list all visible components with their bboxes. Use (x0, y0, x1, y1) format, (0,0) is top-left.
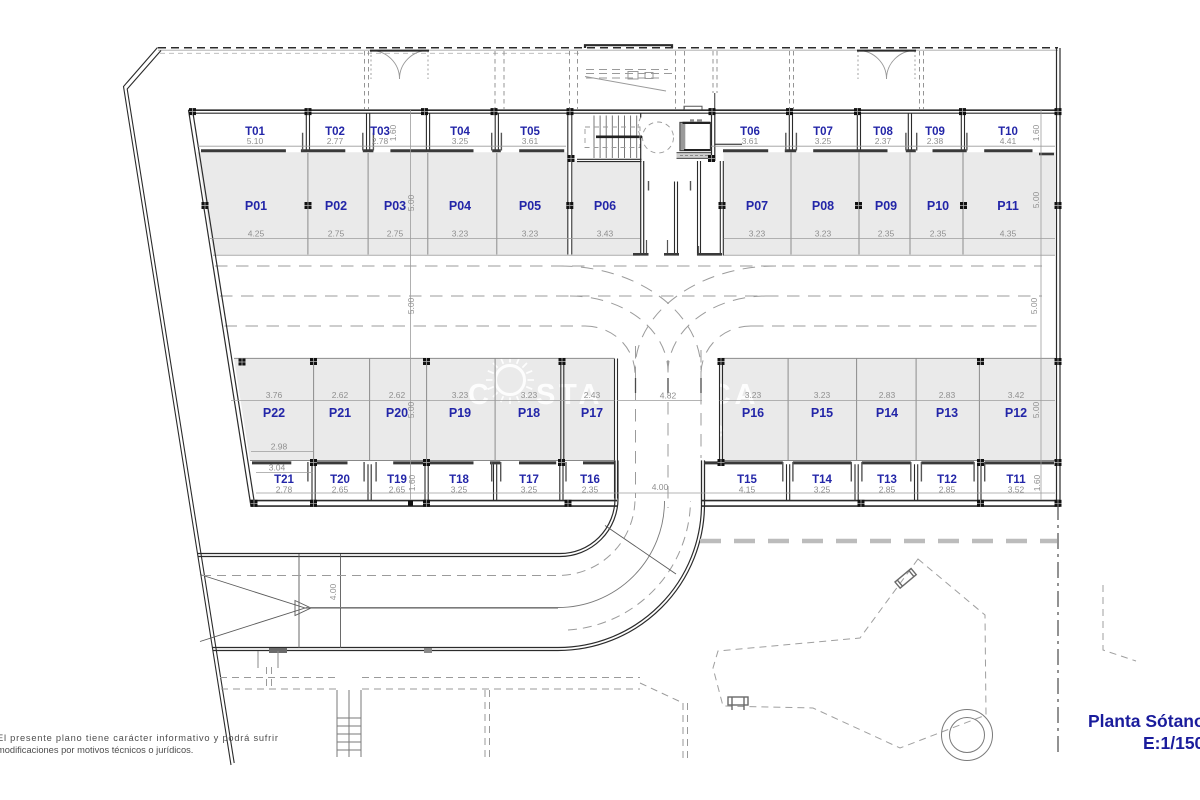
svg-text:5.00: 5.00 (406, 401, 416, 418)
svg-text:4.25: 4.25 (248, 229, 265, 239)
svg-text:3.23: 3.23 (452, 229, 469, 239)
svg-text:5.00: 5.00 (1031, 401, 1041, 418)
svg-text:3.43: 3.43 (597, 229, 614, 239)
svg-text:STA BLANCA: STA BLANCA (536, 379, 759, 411)
svg-text:1.60: 1.60 (407, 474, 417, 491)
svg-text:2.38: 2.38 (927, 136, 944, 146)
svg-text:3.25: 3.25 (814, 485, 831, 495)
svg-text:2.85: 2.85 (879, 485, 896, 495)
svg-text:4.00: 4.00 (652, 482, 669, 492)
svg-text:2.83: 2.83 (879, 390, 896, 400)
svg-text:P06: P06 (594, 199, 616, 213)
svg-text:3.23: 3.23 (814, 390, 831, 400)
svg-text:2.77: 2.77 (327, 136, 344, 146)
svg-text:4.82: 4.82 (660, 391, 677, 401)
svg-text:3.61: 3.61 (742, 136, 759, 146)
svg-text:3.23: 3.23 (521, 390, 538, 400)
svg-text:3.23: 3.23 (745, 390, 762, 400)
svg-text:2.35: 2.35 (878, 229, 895, 239)
svg-text:modificaciones por motivos téc: modificaciones por motivos técnicos o ju… (0, 745, 193, 755)
svg-text:2.37: 2.37 (875, 136, 892, 146)
svg-text:3.23: 3.23 (522, 229, 539, 239)
svg-text:5.00: 5.00 (1031, 191, 1041, 208)
svg-text:P16: P16 (742, 406, 764, 420)
svg-text:4.00: 4.00 (328, 583, 338, 600)
svg-text:P21: P21 (329, 406, 351, 420)
svg-text:4.35: 4.35 (1000, 229, 1017, 239)
svg-text:5.00: 5.00 (406, 297, 416, 314)
svg-text:2.62: 2.62 (332, 390, 349, 400)
svg-text:2.35: 2.35 (930, 229, 947, 239)
svg-text:2.65: 2.65 (332, 485, 349, 495)
svg-text:3.23: 3.23 (815, 229, 832, 239)
svg-text:P07: P07 (746, 199, 768, 213)
svg-text:4.41: 4.41 (1000, 136, 1017, 146)
svg-text:2.35: 2.35 (582, 485, 599, 495)
svg-text:E:1/150: E:1/150 (1143, 733, 1200, 753)
svg-text:P15: P15 (811, 406, 833, 420)
svg-text:3.61: 3.61 (522, 136, 539, 146)
svg-text:P09: P09 (875, 199, 897, 213)
svg-text:5.00: 5.00 (1029, 297, 1039, 314)
svg-text:2.75: 2.75 (387, 229, 404, 239)
svg-text:P14: P14 (876, 406, 898, 420)
svg-text:3.23: 3.23 (749, 229, 766, 239)
svg-text:2.83: 2.83 (939, 390, 956, 400)
svg-text:3.42: 3.42 (1008, 390, 1025, 400)
svg-text:El presente plano tiene caráct: El presente plano tiene carácter informa… (0, 733, 278, 743)
svg-text:3.25: 3.25 (452, 136, 469, 146)
svg-text:5.00: 5.00 (406, 194, 416, 211)
svg-text:C: C (468, 379, 493, 411)
svg-text:P17: P17 (581, 406, 603, 420)
svg-text:P03: P03 (384, 199, 406, 213)
svg-text:1.60: 1.60 (388, 124, 398, 141)
svg-text:P05: P05 (519, 199, 541, 213)
svg-text:3.76: 3.76 (266, 390, 283, 400)
svg-text:2.98: 2.98 (271, 442, 288, 452)
svg-text:2.43: 2.43 (584, 390, 601, 400)
svg-text:P13: P13 (936, 406, 958, 420)
svg-text:1.60: 1.60 (1032, 474, 1042, 491)
svg-text:P20: P20 (386, 406, 408, 420)
svg-text:3.25: 3.25 (815, 136, 832, 146)
svg-text:3.25: 3.25 (521, 485, 538, 495)
svg-text:3.23: 3.23 (452, 390, 469, 400)
svg-text:3.25: 3.25 (451, 485, 468, 495)
svg-text:P08: P08 (812, 199, 834, 213)
svg-text:2.85: 2.85 (939, 485, 956, 495)
svg-text:2.78: 2.78 (276, 485, 293, 495)
svg-text:P10: P10 (927, 199, 949, 213)
svg-text:Planta Sótano: Planta Sótano (1088, 711, 1200, 731)
svg-text:2.65: 2.65 (389, 485, 406, 495)
svg-text:2.62: 2.62 (389, 390, 406, 400)
svg-text:1.60: 1.60 (1031, 124, 1041, 141)
svg-text:P12: P12 (1005, 406, 1027, 420)
svg-text:P02: P02 (325, 199, 347, 213)
svg-text:P19: P19 (449, 406, 471, 420)
svg-text:P22: P22 (263, 406, 285, 420)
svg-text:P04: P04 (449, 199, 471, 213)
svg-text:P11: P11 (997, 199, 1019, 213)
svg-text:5.10: 5.10 (247, 136, 264, 146)
svg-text:2.78: 2.78 (372, 136, 389, 146)
svg-text:P18: P18 (518, 406, 540, 420)
svg-text:3.52: 3.52 (1008, 485, 1025, 495)
svg-text:4.15: 4.15 (739, 485, 756, 495)
svg-text:3.04: 3.04 (269, 463, 286, 473)
svg-text:P01: P01 (245, 199, 267, 213)
svg-text:2.75: 2.75 (328, 229, 345, 239)
